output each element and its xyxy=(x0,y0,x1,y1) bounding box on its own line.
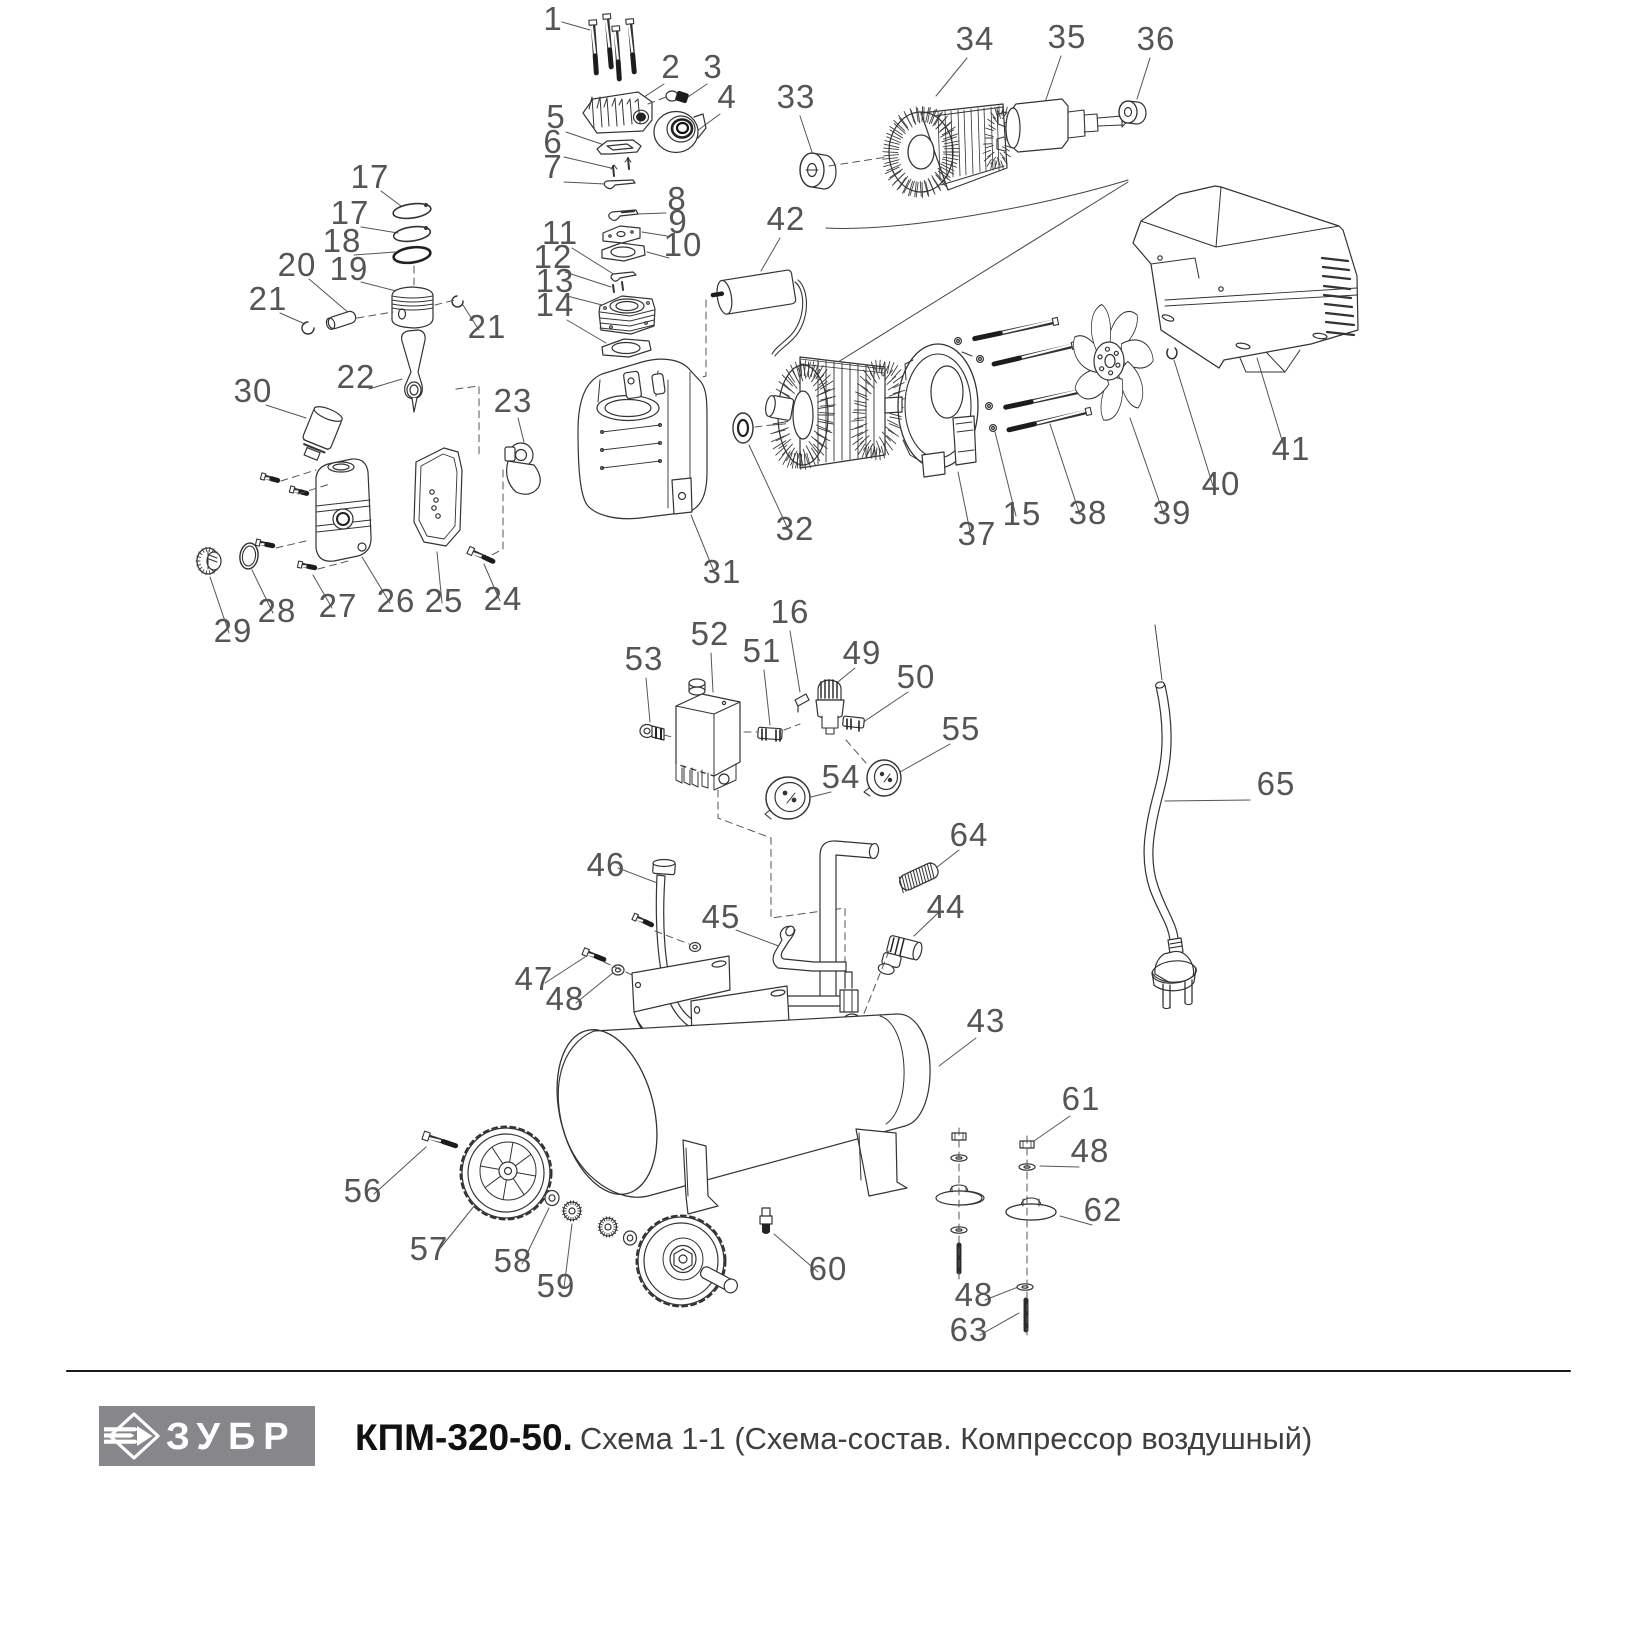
svg-text:33: 33 xyxy=(777,78,816,115)
svg-text:24: 24 xyxy=(484,580,523,617)
svg-text:58: 58 xyxy=(494,1242,533,1279)
svg-text:45: 45 xyxy=(702,898,741,935)
svg-text:41: 41 xyxy=(1272,430,1311,467)
svg-text:48: 48 xyxy=(955,1276,994,1313)
svg-text:43: 43 xyxy=(967,1002,1006,1039)
svg-text:62: 62 xyxy=(1084,1191,1123,1228)
svg-text:56: 56 xyxy=(344,1172,383,1209)
svg-text:37: 37 xyxy=(958,515,997,552)
svg-text:28: 28 xyxy=(258,592,297,629)
svg-text:17: 17 xyxy=(351,158,390,195)
svg-text:21: 21 xyxy=(468,308,507,345)
svg-text:48: 48 xyxy=(1071,1132,1110,1169)
svg-text:ЗУБР: ЗУБР xyxy=(166,1416,297,1458)
svg-text:64: 64 xyxy=(950,816,989,853)
svg-text:2: 2 xyxy=(661,48,680,85)
svg-text:34: 34 xyxy=(956,20,995,57)
svg-text:57: 57 xyxy=(410,1230,449,1267)
svg-text:19: 19 xyxy=(330,250,369,287)
svg-text:61: 61 xyxy=(1062,1080,1101,1117)
svg-text:52: 52 xyxy=(691,615,730,652)
svg-text:15: 15 xyxy=(1003,495,1042,532)
svg-text:55: 55 xyxy=(942,710,981,747)
svg-text:63: 63 xyxy=(950,1311,989,1348)
svg-text:22: 22 xyxy=(337,358,376,395)
svg-text:23: 23 xyxy=(494,382,533,419)
svg-text:59: 59 xyxy=(537,1267,576,1304)
svg-text:26: 26 xyxy=(377,582,416,619)
svg-text:10: 10 xyxy=(664,226,703,263)
svg-text:КПМ-320-50.: КПМ-320-50. xyxy=(355,1417,573,1458)
svg-text:16: 16 xyxy=(771,593,810,630)
svg-text:51: 51 xyxy=(743,632,782,669)
svg-text:53: 53 xyxy=(625,640,664,677)
svg-text:42: 42 xyxy=(767,200,806,237)
svg-text:49: 49 xyxy=(843,634,882,671)
svg-text:4: 4 xyxy=(717,78,736,115)
svg-text:20: 20 xyxy=(278,246,317,283)
svg-text:36: 36 xyxy=(1137,20,1176,57)
svg-text:30: 30 xyxy=(234,372,273,409)
svg-text:40: 40 xyxy=(1202,465,1241,502)
svg-text:21: 21 xyxy=(249,280,288,317)
svg-text:50: 50 xyxy=(897,658,936,695)
svg-text:35: 35 xyxy=(1048,18,1087,55)
svg-text:29: 29 xyxy=(214,612,253,649)
svg-text:7: 7 xyxy=(543,148,562,185)
svg-text:25: 25 xyxy=(425,582,464,619)
svg-text:48: 48 xyxy=(546,980,585,1017)
svg-text:Схема 1-1 (Схема-состав. Компр: Схема 1-1 (Схема-состав. Компрессор возд… xyxy=(580,1421,1312,1456)
svg-text:46: 46 xyxy=(587,846,626,883)
svg-text:1: 1 xyxy=(543,0,562,37)
svg-text:44: 44 xyxy=(927,888,966,925)
svg-text:65: 65 xyxy=(1257,765,1296,802)
svg-text:14: 14 xyxy=(536,286,575,323)
svg-text:54: 54 xyxy=(822,758,861,795)
svg-text:27: 27 xyxy=(319,587,358,624)
